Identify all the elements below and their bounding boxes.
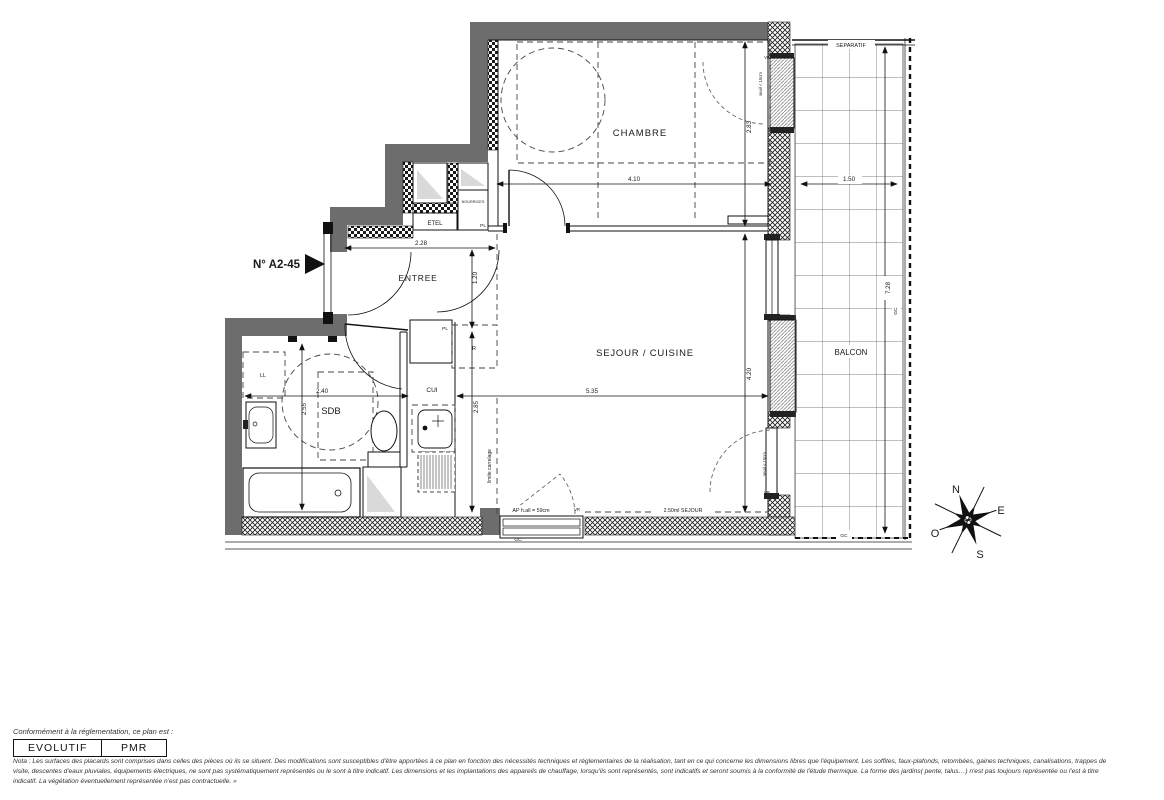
floorplan-page: N° A2-45 CHAMBRE ENTREE SEJOUR / CUISINE… <box>0 0 1164 800</box>
label-limite-carrelage: limite carrelage <box>487 449 493 483</box>
dim-chambre-l: 4.10 <box>628 176 641 183</box>
label-placard-haut: PL <box>480 223 486 229</box>
dim-balcon-l: 1.50 <box>843 176 856 183</box>
label-seuil-chambre: seuil < 15cm <box>758 72 763 96</box>
dashed-zones <box>243 42 770 517</box>
label-cuisine-abbr: CUI <box>426 387 437 394</box>
dim-entree-l: 2.28 <box>415 240 428 247</box>
dim-sejour-p: 4.20 <box>746 367 753 380</box>
dim-balcon-p: 7.28 <box>885 281 892 294</box>
badge-evolutif: EVOLUTIF <box>14 740 102 756</box>
dim-chambre-p: 2.83 <box>746 120 753 133</box>
room-label-chambre: CHAMBRE <box>613 128 668 139</box>
nota-line-3: indicatif. La végétation éventuellement … <box>13 777 1158 787</box>
dim-sejour-l: 5.35 <box>586 388 599 395</box>
fixtures <box>243 402 455 517</box>
room-label-balcon: BALCON <box>835 348 868 357</box>
unit-tag: N° A2-45 <box>253 254 325 274</box>
legend: Conformément à la réglementation, ce pla… <box>13 727 173 757</box>
legend-table: EVOLUTIF PMR <box>13 739 167 757</box>
label-gc-bas: GC <box>840 533 848 539</box>
nota-disclaimer: Nota : Les surfaces des placards sont co… <box>13 757 1158 787</box>
label-seuil-sejour: seuil < 15cm <box>762 452 767 476</box>
nota-line-2: visite, descentes d'eaux pluviales, équi… <box>13 767 1158 777</box>
compass-west: O <box>931 528 940 540</box>
label-gc-fenetre: GC <box>514 537 522 543</box>
compass-north: N <box>952 484 960 496</box>
label-vr-sejour: VR <box>764 490 770 495</box>
badge-pmr: PMR <box>102 740 166 756</box>
label-vr-fenetre: VR <box>574 507 580 512</box>
floorplan-drawing: N° A2-45 CHAMBRE ENTREE SEJOUR / CUISINE… <box>0 0 1164 800</box>
label-refrigerateur: R <box>472 346 476 352</box>
label-etel: ETEL <box>427 221 443 227</box>
room-label-sejour-cuisine: SEJOUR / CUISINE <box>596 348 694 359</box>
unit-arrow-icon <box>305 254 325 274</box>
room-label-sdb: SDB <box>321 406 341 417</box>
nota-line-1: Nota : Les surfaces des placards sont co… <box>13 757 1158 767</box>
dim-sdb-l: 2.40 <box>316 388 329 395</box>
dim-cuisine-p: 2.85 <box>473 400 480 413</box>
dim-sdb-p: 2.55 <box>301 402 308 415</box>
facade-hatched-walls <box>242 22 795 535</box>
compass-rose-icon: N E S O <box>931 484 1005 561</box>
dim-entree-p: 1.20 <box>472 271 479 284</box>
label-lave-linge: LL <box>260 373 266 379</box>
room-label-entree: ENTREE <box>398 273 437 283</box>
compass-east: E <box>997 505 1004 517</box>
label-gc-droit: GC <box>893 307 899 315</box>
partitions <box>288 40 768 517</box>
label-nourrices: NOURRICES <box>462 200 485 204</box>
label-vr-chambre: VR <box>764 55 770 60</box>
unit-number: N° A2-45 <box>253 259 301 271</box>
label-allege: AP h.all = 59cm <box>512 508 550 514</box>
label-placard-cuisine: PL <box>442 326 448 332</box>
legend-intro: Conformément à la réglementation, ce pla… <box>13 727 173 736</box>
label-lineaire-sejour: 2.50ml SEJOUR <box>664 508 703 514</box>
label-separatif: SEPARATIF <box>836 43 866 49</box>
compass-south: S <box>976 549 983 561</box>
